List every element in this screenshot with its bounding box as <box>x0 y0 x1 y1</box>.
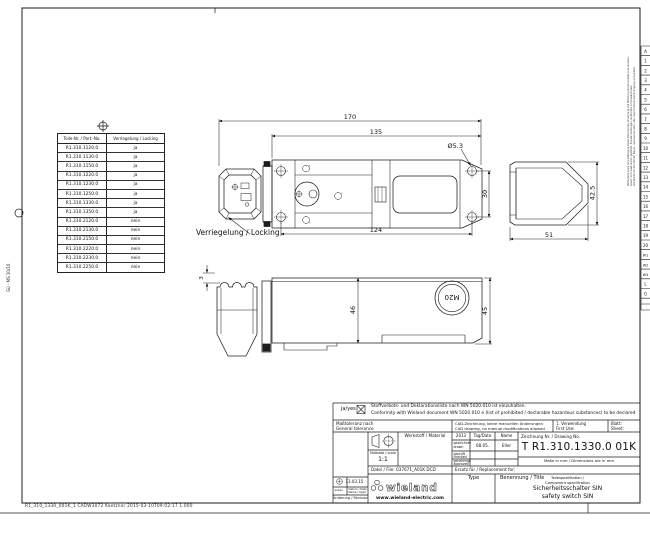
edge-cell: 13 <box>643 175 649 180</box>
parts-row: R1.310.2150.0nein <box>58 236 164 245</box>
front-view <box>217 278 482 356</box>
edge-cell: 17 <box>643 214 649 219</box>
part-number-cell: R1.310.2120.0 <box>58 218 107 226</box>
first-use-label-en: First Use: <box>556 427 575 431</box>
dim-front-height-end: 45 <box>481 307 489 315</box>
substances-confirm-label: ja/yes <box>341 407 356 412</box>
name-column-header: Name <box>495 434 518 438</box>
units-note: Maße in mm / Dimensions are in mm <box>518 459 640 463</box>
locking-cell: ja <box>107 144 164 152</box>
parts-row: R1.310.2120.0nein <box>58 218 164 227</box>
part-number-cell: R1.310.2230.0 <box>58 254 107 262</box>
locking-cell: ja <box>107 199 164 207</box>
checkbox-checked-icon <box>357 406 365 414</box>
part-number-header: Teile-Nr. / Part.-No. <box>58 134 107 143</box>
edge-cell: 8 <box>644 127 647 132</box>
index-label: Index <box>335 489 343 492</box>
part-number-cell: R1.310.2150.0 <box>58 236 107 244</box>
part-number-cell: R1.310.1230.0 <box>58 181 107 189</box>
edge-cell: 19 <box>643 233 649 238</box>
dim-hole-spacing-length: 124 <box>370 226 382 234</box>
top-view <box>219 160 482 228</box>
edge-cell: 4 <box>644 88 647 93</box>
date-column-header: Tag/Date <box>470 434 495 438</box>
cable-gland-label: M20 <box>445 293 460 301</box>
product-name-en: safety switch SIN <box>495 494 640 500</box>
part-number-cell: R1.310.1220.0 <box>58 172 107 180</box>
parts-row: R1.310.2130.0nein <box>58 227 164 236</box>
edge-cell: 11 <box>643 156 649 161</box>
parts-row: R1.310.2250.0nein <box>58 263 164 271</box>
parts-table: Teile-Nr. / Part.-No. Verriegelung / Loc… <box>57 133 165 273</box>
dim-hole-spacing-width: 30 <box>481 190 489 198</box>
type-label: Type <box>452 476 495 481</box>
edge-cell: 14 <box>643 185 649 190</box>
edge-cell: W3 <box>643 273 649 277</box>
edge-cell: W2 <box>643 263 649 267</box>
revision-label: Änderung / Revision <box>333 497 368 501</box>
part-number-cell: R1.310.1250.0 <box>58 190 107 198</box>
dim-front-height-body: 46 <box>349 306 357 314</box>
side-view <box>510 162 588 225</box>
projection-symbol-icon <box>372 434 396 448</box>
parts-row: R1.310.1250.0ja <box>58 190 164 199</box>
dim-total-length: 170 <box>344 113 356 121</box>
locking-cell: ja <box>107 172 164 180</box>
dim-body-length: 135 <box>370 128 382 136</box>
substances-note-de: Stoffverbots- und Deklarationsliste nach… <box>371 405 526 409</box>
tolerance-label-en: General tolerance <box>336 427 374 431</box>
switch-body-front <box>272 278 482 350</box>
sheet-label-en: Sheet: <box>611 427 624 431</box>
parts-row: R1.310.1120.0ja <box>58 144 164 153</box>
edge-cell: 10 <box>643 146 649 151</box>
locking-cell: ja <box>107 208 164 216</box>
replacement-label: Ersatz für / Replacement for: <box>455 468 515 472</box>
file-label: Datei / File: <box>371 468 395 472</box>
revision-name-label: Name / Appd <box>349 491 367 494</box>
parts-row: R1.310.1220.0ja <box>58 172 164 181</box>
scale-label: Maßstab / scale <box>368 452 398 455</box>
edge-cell: L <box>644 282 647 287</box>
revision-date: 13.03.15 <box>346 480 364 484</box>
edge-strip: A 1 2 3 4 5 6 7 8 9 10 11 12 13 14 15 16… <box>641 46 650 310</box>
drawn-name: Eller <box>495 444 518 448</box>
file-value: 037671_A01K.DCD <box>396 468 436 472</box>
locking-cell: nein <box>107 263 164 271</box>
drawing-no: T R1.310.1330.0 01K <box>518 442 640 453</box>
year-header: 2013 <box>452 434 470 438</box>
mounting-plate-top <box>263 162 272 227</box>
dim-side-height: 42.5 <box>589 186 597 200</box>
brand-wordmark: wieland <box>386 482 438 494</box>
locking-cell: ja <box>107 153 164 161</box>
locking-cell: nein <box>107 236 164 244</box>
locking-cell: nein <box>107 218 164 226</box>
dim-hole-diameter: Ø5.3 <box>448 142 463 150</box>
part-number-cell: R1.310.1130.0 <box>58 153 107 161</box>
substances-note-en: Conformity with Wieland document WN 5020… <box>371 412 635 416</box>
part-number-cell: R1.310.1120.0 <box>58 144 107 152</box>
edge-cell: 7 <box>644 117 647 122</box>
edge-cell: W1 <box>643 254 649 258</box>
product-name-de: Sicherheitsschalter SIN <box>495 486 640 492</box>
parts-row: R1.310.1330.0ja <box>58 199 164 208</box>
locking-cell: ja <box>107 190 164 198</box>
drawing-no-label: Zeichnung Nr. / Drawing No. <box>521 435 580 439</box>
edge-cell: 3 <box>644 78 647 83</box>
parts-row: R1.310.2220.0nein <box>58 245 164 254</box>
edge-cell: 6 <box>644 107 647 112</box>
scale-value: 1:1 <box>368 457 398 463</box>
part-number-cell: R1.310.1330.0 <box>58 199 107 207</box>
mounting-plate-front <box>262 281 271 352</box>
mounting-holes <box>274 164 479 224</box>
part-number-cell: R1.310.1350.0 <box>58 208 107 216</box>
parts-row: R1.310.1150.0ja <box>58 162 164 171</box>
edge-cell: 20 <box>643 243 649 248</box>
edge-cell: G <box>644 291 647 296</box>
edge-cell: 18 <box>643 224 649 229</box>
parts-row: R1.310.1350.0ja <box>58 208 164 217</box>
edge-cell: 9 <box>644 136 647 141</box>
dim-side-width: 51 <box>545 231 553 239</box>
actuator-head-front <box>217 283 257 357</box>
drawn-label-en: drawn <box>454 446 464 449</box>
edge-cell: 1 <box>644 59 647 64</box>
edge-cell: 15 <box>643 194 649 199</box>
edge-cell: 5 <box>644 97 647 102</box>
material-label: Werkstoff / Material <box>398 434 452 438</box>
confidentiality-note-en: Alle Rechte für den Fall der Patent-, Ge… <box>633 54 636 186</box>
plot-footer: R1_310_1330_001K_1 CADW3072 Koetzner 201… <box>25 505 193 509</box>
locking-header: Verriegelung / Locking <box>107 134 164 143</box>
locking-annotation: Verriegelung / Locking <box>196 229 280 237</box>
parts-row: R1.310.1230.0ja <box>58 181 164 190</box>
revision-symbol-icon <box>337 479 343 485</box>
registration-mark <box>97 120 109 132</box>
locking-cell: nein <box>107 254 164 262</box>
part-number-cell: R1.310.2130.0 <box>58 227 107 235</box>
locking-cell: nein <box>107 227 164 235</box>
drawing-sheet: { "sheet": { "footer_line": "R1_310_1330… <box>0 0 650 560</box>
locking-cell: ja <box>107 181 164 189</box>
part-number-cell: R1.310.2220.0 <box>58 245 107 253</box>
part-number-cell: R1.310.2250.0 <box>58 263 107 271</box>
dim-head-offset: 3 <box>199 276 205 280</box>
locking-cell: ja <box>107 162 164 170</box>
edge-cell: 16 <box>643 204 649 209</box>
parts-table-header: Teile-Nr. / Part.-No. Verriegelung / Loc… <box>58 134 164 144</box>
parts-row: R1.310.2230.0nein <box>58 254 164 263</box>
parts-row: R1.310.1130.0ja <box>58 153 164 162</box>
margin-note: Gü - MS 10/10 <box>6 240 11 292</box>
edge-cell: A <box>644 49 647 54</box>
wieland-logo: wieland <box>371 480 438 494</box>
locking-cell: nein <box>107 245 164 253</box>
cad-note-en: CAD drawing, no manual modifications all… <box>455 427 545 431</box>
rotation-symbols <box>303 165 343 224</box>
brand-url: www.wieland-electric.com <box>368 497 452 502</box>
drawn-date: 08.05. <box>470 444 495 448</box>
part-number-cell: R1.310.1150.0 <box>58 162 107 170</box>
edge-cell: 12 <box>643 165 649 170</box>
actuator-head-top <box>219 169 261 219</box>
edge-cell: 2 <box>644 68 647 73</box>
confidentiality-note: Weitergabe sowie Vervielfältigung dieses… <box>627 54 636 186</box>
